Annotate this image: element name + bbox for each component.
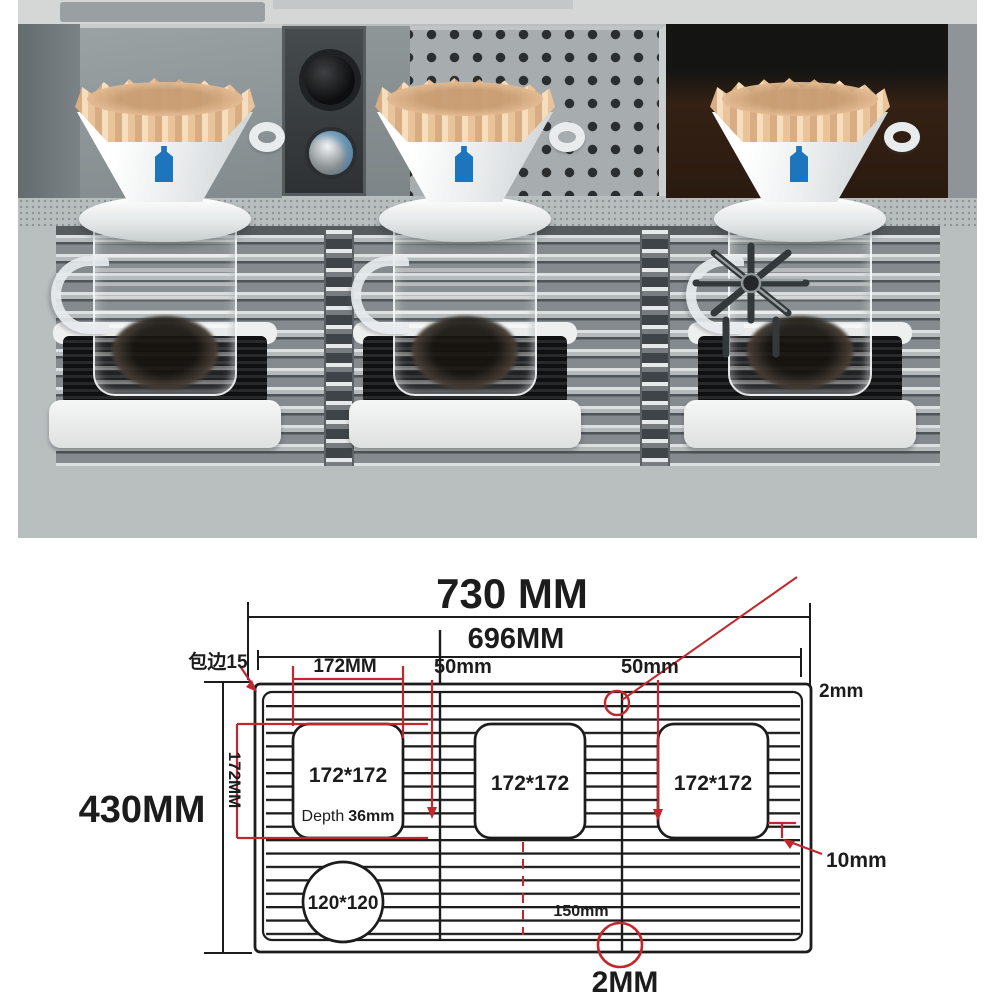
dripper-handle [249, 122, 285, 152]
paper-filter-opening [387, 82, 543, 116]
dim-172-width-label: 172MM [313, 656, 376, 677]
dripper-handle [884, 122, 920, 152]
dim-50-right-label: 50mm [621, 656, 679, 678]
tray-base-front [349, 400, 581, 448]
product-photo [18, 0, 977, 538]
product-listing-image: 730 MM 696MM 430MM 包边15 172MM 50mm 50mm … [0, 0, 1000, 1000]
coffee-station-1 [35, 78, 295, 458]
depth-word: Depth [302, 808, 345, 825]
cutout1-label: 172*172 [309, 764, 387, 787]
coffee-reflection [411, 316, 519, 390]
coffee-station-2 [335, 78, 595, 458]
counter-edge [273, 0, 573, 9]
dim-2mm-rim-label: 2mm [819, 681, 863, 702]
dim-430-label: 430MM [79, 789, 206, 831]
counter-object [60, 2, 265, 22]
drain-circle-label: 120*120 [308, 893, 379, 914]
dripper-base [379, 196, 551, 242]
dim-2mm-plate-label: 2MM [592, 966, 659, 999]
tray-base-front [49, 400, 281, 448]
dripper-handle [549, 122, 585, 152]
paper-filter-opening [722, 82, 878, 116]
dim-150-label: 150mm [553, 903, 608, 920]
cutout2-label: 172*172 [491, 772, 569, 795]
dim-10mm-label: 10mm [826, 849, 887, 872]
dim-172-height-label: 172MM [225, 752, 244, 809]
dimension-diagram: 730 MM 696MM 430MM 包边15 172MM 50mm 50mm … [0, 540, 1000, 1000]
tray-base-front [684, 400, 916, 448]
back-counter-top [18, 0, 977, 24]
dripper-base [79, 196, 251, 242]
depth-label: Depth36mm [302, 808, 395, 825]
back-panel-right [948, 24, 977, 198]
metal-stirrer [666, 228, 836, 358]
dim-50-left-label: 50mm [434, 656, 492, 678]
coffee-reflection [111, 316, 219, 390]
paper-filter-opening [87, 82, 243, 116]
edge-wrap-label: 包边15 [188, 650, 248, 673]
dim-730-label: 730 MM [436, 570, 588, 617]
depth-value: 36mm [348, 808, 394, 825]
cutout3-label: 172*172 [674, 772, 752, 795]
dim-696-label: 696MM [468, 623, 565, 655]
